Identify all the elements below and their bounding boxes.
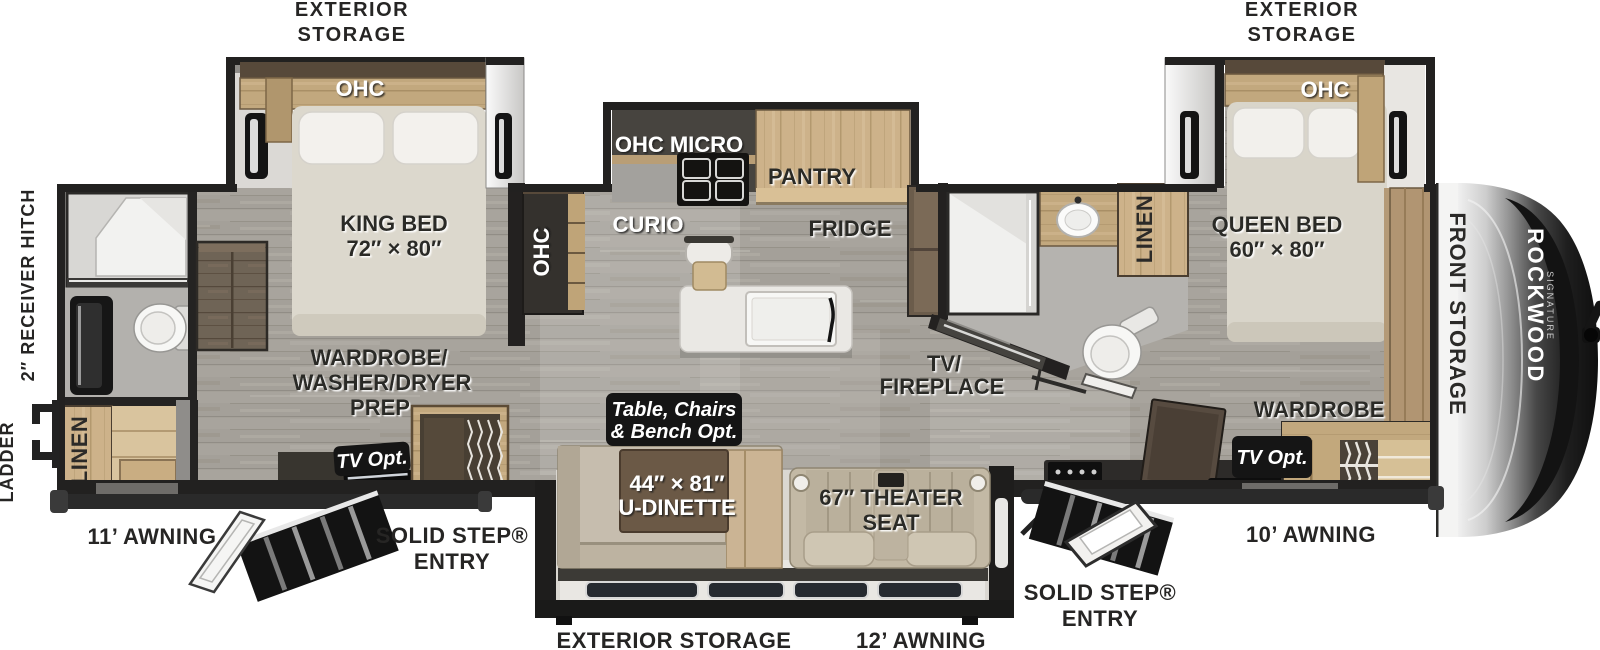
svg-text:72″ × 80″: 72″ × 80″ bbox=[346, 236, 442, 261]
svg-text:EXTERIOR STORAGE: EXTERIOR STORAGE bbox=[557, 628, 792, 650]
svg-text:STORAGE: STORAGE bbox=[1247, 24, 1356, 46]
svg-text:QUEEN BED: QUEEN BED bbox=[1212, 212, 1343, 237]
svg-text:44″ × 81″: 44″ × 81″ bbox=[629, 471, 725, 496]
svg-text:60″ × 80″: 60″ × 80″ bbox=[1229, 237, 1325, 262]
svg-text:FRONT STORAGE: FRONT STORAGE bbox=[1445, 212, 1470, 415]
svg-text:PREP: PREP bbox=[350, 395, 410, 420]
svg-text:ENTRY: ENTRY bbox=[1062, 606, 1138, 631]
svg-text:U-DINETTE: U-DINETTE bbox=[618, 495, 735, 520]
svg-text:WARDROBE: WARDROBE bbox=[1254, 397, 1385, 422]
svg-text:LADDER: LADDER bbox=[0, 422, 17, 503]
svg-text:OHC MICRO: OHC MICRO bbox=[615, 132, 743, 157]
svg-text:KING BED: KING BED bbox=[340, 211, 448, 236]
svg-text:EXTERIOR: EXTERIOR bbox=[295, 0, 409, 21]
svg-text:WASHER/DRYER: WASHER/DRYER bbox=[293, 370, 472, 395]
svg-text:EXTERIOR: EXTERIOR bbox=[1245, 0, 1359, 21]
svg-text:12’ AWNING: 12’ AWNING bbox=[856, 628, 986, 650]
svg-text:2″ RECEIVER HITCH: 2″ RECEIVER HITCH bbox=[18, 189, 38, 382]
svg-text:ENTRY: ENTRY bbox=[414, 549, 490, 574]
svg-text:10’ AWNING: 10’ AWNING bbox=[1246, 522, 1376, 547]
svg-text:OHC: OHC bbox=[529, 227, 554, 276]
svg-text:Table, Chairs: Table, Chairs bbox=[612, 399, 737, 421]
svg-text:OHC: OHC bbox=[336, 76, 385, 101]
svg-text:LINEN: LINEN bbox=[67, 416, 92, 485]
svg-text:SOLID STEP®: SOLID STEP® bbox=[376, 523, 529, 548]
svg-text:67″ THEATER: 67″ THEATER bbox=[819, 485, 962, 510]
svg-text:CURIO: CURIO bbox=[613, 212, 684, 237]
svg-text:FRIDGE: FRIDGE bbox=[808, 216, 891, 241]
svg-text:LINEN: LINEN bbox=[1132, 195, 1157, 264]
svg-text:ROCKWOOD: ROCKWOOD bbox=[1523, 228, 1548, 384]
svg-text:& Bench Opt.: & Bench Opt. bbox=[611, 421, 738, 443]
svg-text:SIGNATURE: SIGNATURE bbox=[1545, 271, 1555, 341]
svg-text:SEAT: SEAT bbox=[862, 510, 920, 535]
svg-text:PANTRY: PANTRY bbox=[768, 164, 856, 189]
svg-text:OHC: OHC bbox=[1301, 77, 1350, 102]
svg-text:STORAGE: STORAGE bbox=[297, 24, 406, 46]
svg-text:11’ AWNING: 11’ AWNING bbox=[88, 524, 217, 549]
svg-text:TV/: TV/ bbox=[927, 351, 961, 376]
svg-text:WARDROBE/: WARDROBE/ bbox=[311, 345, 448, 370]
svg-text:TV Opt.: TV Opt. bbox=[1236, 447, 1307, 469]
svg-text:FIREPLACE: FIREPLACE bbox=[880, 374, 1005, 399]
svg-text:SOLID STEP®: SOLID STEP® bbox=[1024, 580, 1177, 605]
